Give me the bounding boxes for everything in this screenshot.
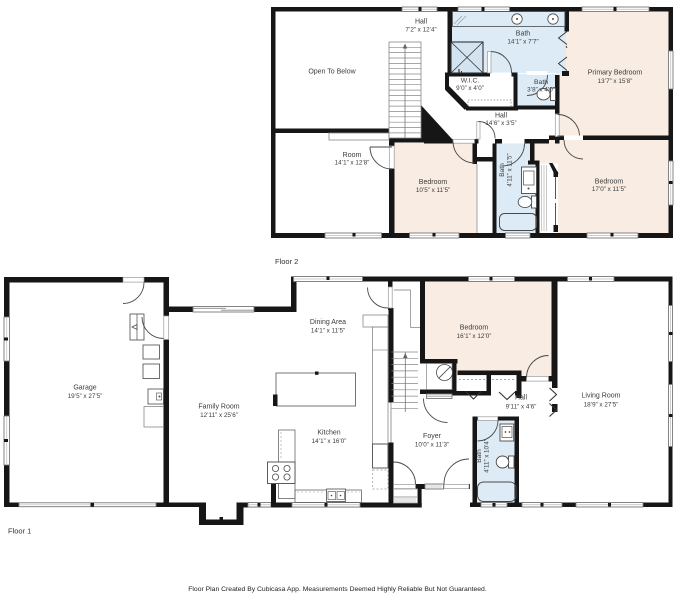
svg-text:Family Room: Family Room — [198, 404, 239, 411]
svg-text:4’11” x 11’5”: 4’11” x 11’5” — [507, 153, 514, 186]
svg-text:W.I.C.: W.I.C. — [461, 78, 480, 85]
svg-text:Hall: Hall — [415, 19, 428, 26]
svg-text:9’11” x 4’6”: 9’11” x 4’6” — [506, 404, 537, 411]
svg-text:Dining Area: Dining Area — [310, 319, 346, 326]
svg-text:Kitchen: Kitchen — [317, 430, 340, 437]
svg-text:14’1” x 7’7”: 14’1” x 7’7” — [507, 39, 538, 46]
svg-text:14’1” x 11’5”: 14’1” x 11’5” — [311, 328, 345, 335]
svg-text:Bedroom: Bedroom — [460, 325, 489, 332]
svg-text:Bath: Bath — [499, 163, 506, 177]
svg-text:14’6” x 3’5”: 14’6” x 3’5” — [485, 120, 516, 127]
svg-text:12’11” x 25’6”: 12’11” x 25’6” — [200, 412, 238, 419]
svg-text:Garage: Garage — [73, 385, 96, 392]
svg-text:17’0” x 11’5”: 17’0” x 11’5” — [592, 186, 626, 193]
svg-text:Floor 2: Floor 2 — [275, 257, 298, 266]
svg-text:13’7” x 15’8”: 13’7” x 15’8” — [598, 78, 633, 85]
svg-text:Living Room: Living Room — [582, 393, 621, 400]
svg-text:Bedroom: Bedroom — [419, 179, 448, 186]
svg-text:Open To Below: Open To Below — [308, 69, 356, 76]
svg-text:14’1” x 16’0”: 14’1” x 16’0” — [312, 438, 347, 445]
svg-text:Hall: Hall — [495, 113, 508, 120]
svg-text:10’5” x 11’5”: 10’5” x 11’5” — [416, 187, 450, 194]
svg-text:Bath: Bath — [534, 79, 548, 86]
svg-text:Bath: Bath — [476, 449, 483, 463]
svg-text:19’5” x 27’5”: 19’5” x 27’5” — [68, 393, 103, 400]
svg-text:10’0” x 11’3”: 10’0” x 11’3” — [415, 442, 449, 449]
svg-text:7’2” x 12’4”: 7’2” x 12’4” — [405, 27, 436, 34]
svg-text:Room: Room — [343, 152, 362, 159]
svg-text:Bath: Bath — [516, 31, 531, 38]
svg-text:Bedroom: Bedroom — [595, 179, 624, 186]
svg-text:4’11” x 10’4”: 4’11” x 10’4” — [484, 439, 491, 473]
svg-text:16’1” x 12’0”: 16’1” x 12’0” — [457, 333, 492, 340]
svg-text:Floor Plan Created By Cubicasa: Floor Plan Created By Cubicasa App. Meas… — [188, 586, 487, 593]
svg-text:14’1” x 12’8”: 14’1” x 12’8” — [335, 160, 370, 167]
svg-text:3’8” x 4’0”: 3’8” x 4’0” — [527, 87, 555, 94]
svg-text:Hall: Hall — [515, 395, 528, 402]
svg-text:Floor 1: Floor 1 — [8, 527, 31, 536]
svg-text:Foyer: Foyer — [423, 433, 442, 440]
svg-text:Primary Bedroom: Primary Bedroom — [588, 70, 643, 77]
svg-text:18’9” x 27’5”: 18’9” x 27’5” — [584, 402, 619, 409]
svg-text:9’0” x 4’0”: 9’0” x 4’0” — [456, 85, 484, 92]
